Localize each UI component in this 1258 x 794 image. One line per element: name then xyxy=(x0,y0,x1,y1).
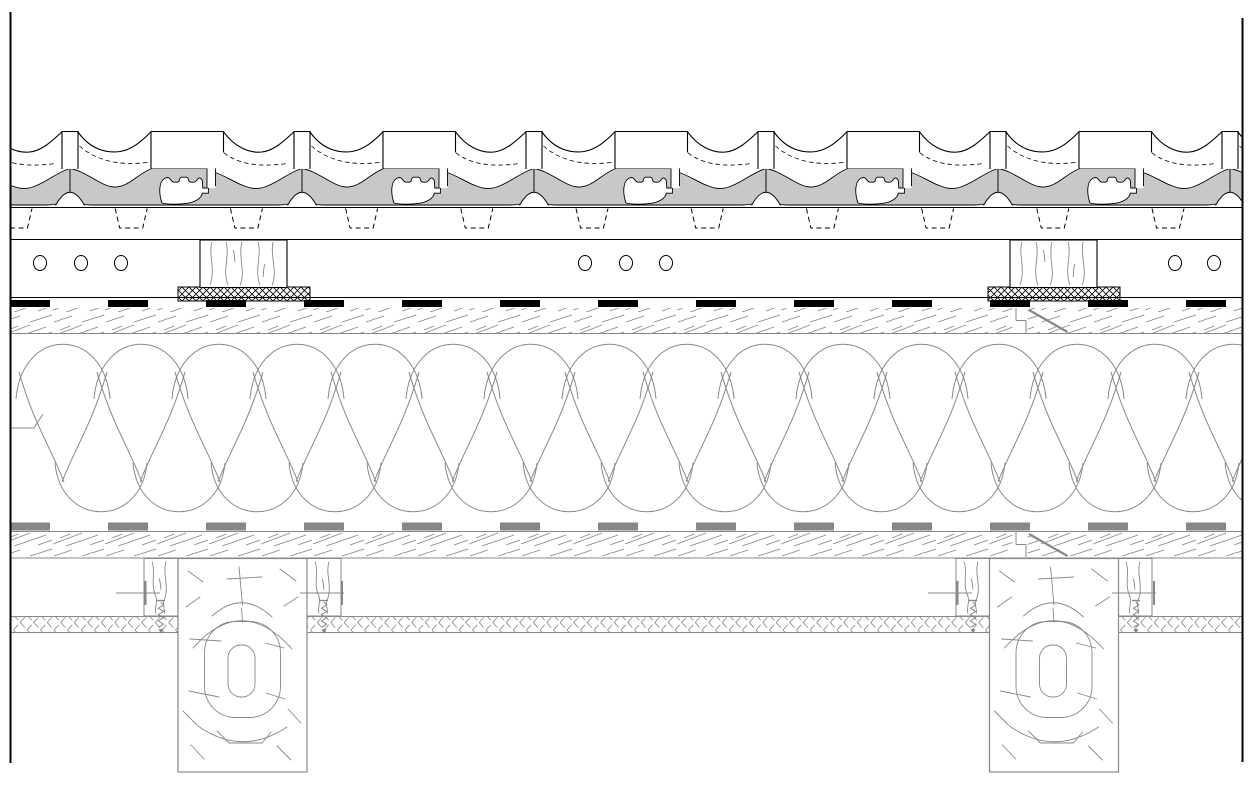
crosshatch-pad xyxy=(988,287,1120,301)
vent-hole xyxy=(660,256,673,271)
vent-hole xyxy=(620,256,633,271)
vent-hole xyxy=(1208,256,1221,271)
vent-hole xyxy=(579,256,592,271)
sheathing-board xyxy=(10,532,1243,558)
vent-hole xyxy=(34,256,47,271)
ceiling-board-segment xyxy=(10,617,178,632)
rafter-beam xyxy=(178,559,307,773)
rafter-beam xyxy=(990,559,1119,773)
vent-hole xyxy=(1169,256,1182,271)
roof-section-drawing xyxy=(0,0,1258,794)
ceiling-board-segment xyxy=(307,617,990,632)
crosshatch-pad xyxy=(178,287,310,301)
roof-section-drawing-canvas xyxy=(0,0,1258,794)
sheathing-board xyxy=(10,308,1243,333)
vent-hole xyxy=(115,256,128,271)
vent-hole xyxy=(75,256,88,271)
